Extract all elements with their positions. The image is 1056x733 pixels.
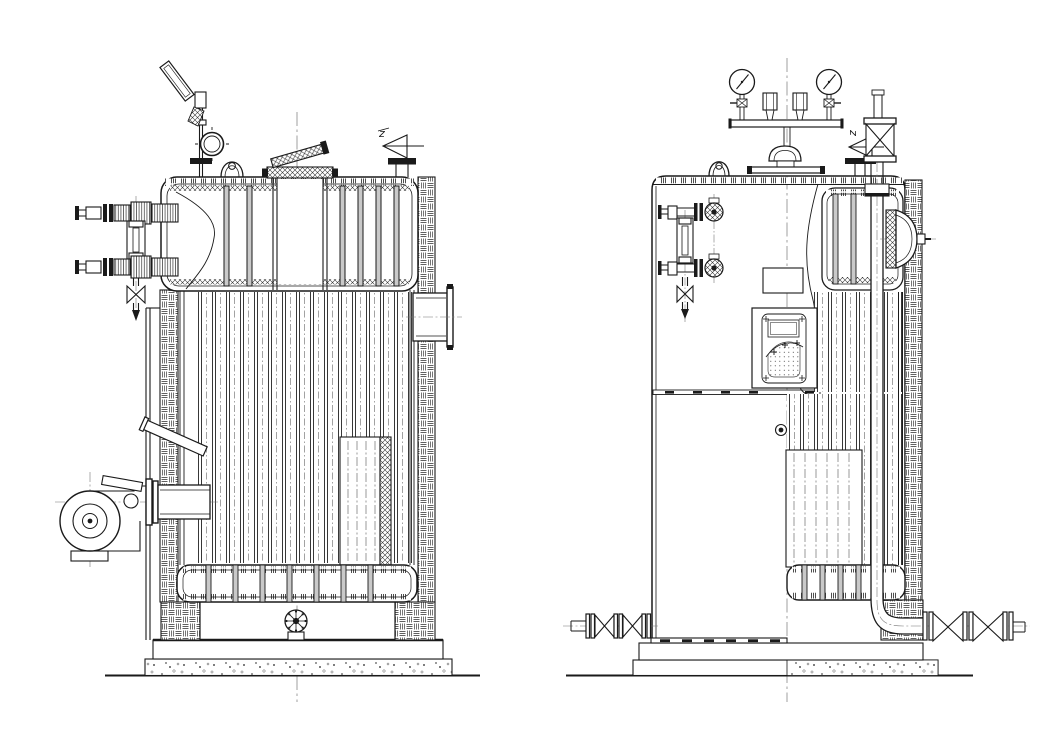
left-lower-drum xyxy=(177,565,417,602)
left-safety-valve-label: z xyxy=(378,127,385,140)
boiler-two-view-drawing: z xyxy=(0,0,1056,733)
left-access-panel xyxy=(340,437,391,565)
base-ring xyxy=(651,638,787,643)
drawing-page: z xyxy=(0,0,1056,733)
sight-glass xyxy=(127,221,145,259)
right-access-panel xyxy=(786,450,862,567)
right-safety-valve-label: z xyxy=(846,130,859,137)
burner-barrel xyxy=(158,485,210,519)
inspection-panel xyxy=(752,308,817,388)
shell-seam xyxy=(653,390,820,395)
right-sight-glass xyxy=(677,218,693,263)
junction-box xyxy=(763,268,803,293)
left-foundation xyxy=(105,640,480,676)
handwheel-fitting xyxy=(285,610,307,640)
right-lower-drum xyxy=(787,565,905,600)
flue-gas-outlet xyxy=(406,284,462,350)
